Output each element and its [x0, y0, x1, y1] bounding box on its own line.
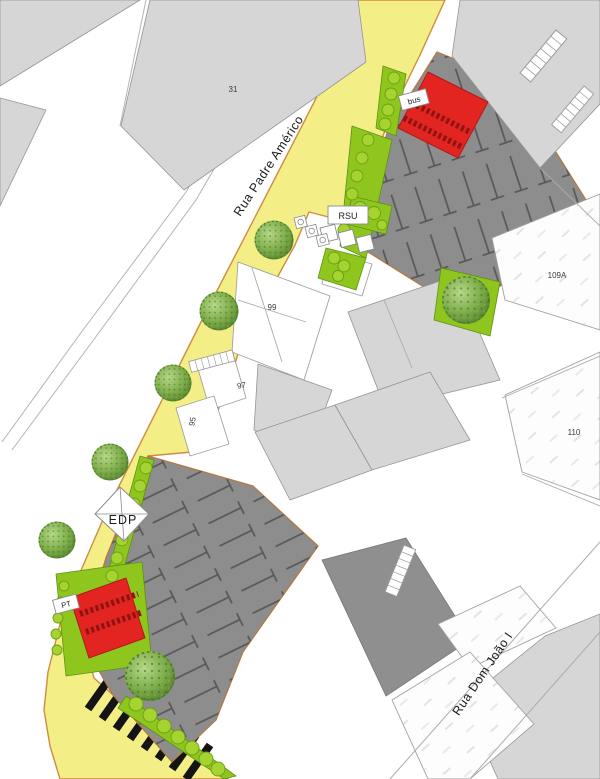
tree-icon [39, 522, 76, 559]
label-99: 99 [268, 303, 277, 312]
tree-icon [200, 292, 239, 331]
edp-label: EDP [109, 513, 138, 527]
tree-icon [255, 221, 294, 260]
waste-bin [338, 229, 356, 247]
tree-icon [155, 365, 192, 402]
street-bin [316, 233, 329, 246]
label-109a: 109A [548, 271, 567, 280]
waste-bin [356, 234, 374, 252]
tree-icon [442, 276, 490, 324]
label-31: 31 [229, 85, 238, 94]
site-plan-drawing: bus RSU EDP PT 31 9 [0, 0, 600, 779]
site-plan-page: bus RSU EDP PT 31 9 [0, 0, 600, 779]
tree-icon [92, 444, 129, 481]
label-110: 110 [568, 428, 581, 437]
rsu-label: RSU [338, 211, 357, 221]
tree-icon [125, 651, 175, 701]
